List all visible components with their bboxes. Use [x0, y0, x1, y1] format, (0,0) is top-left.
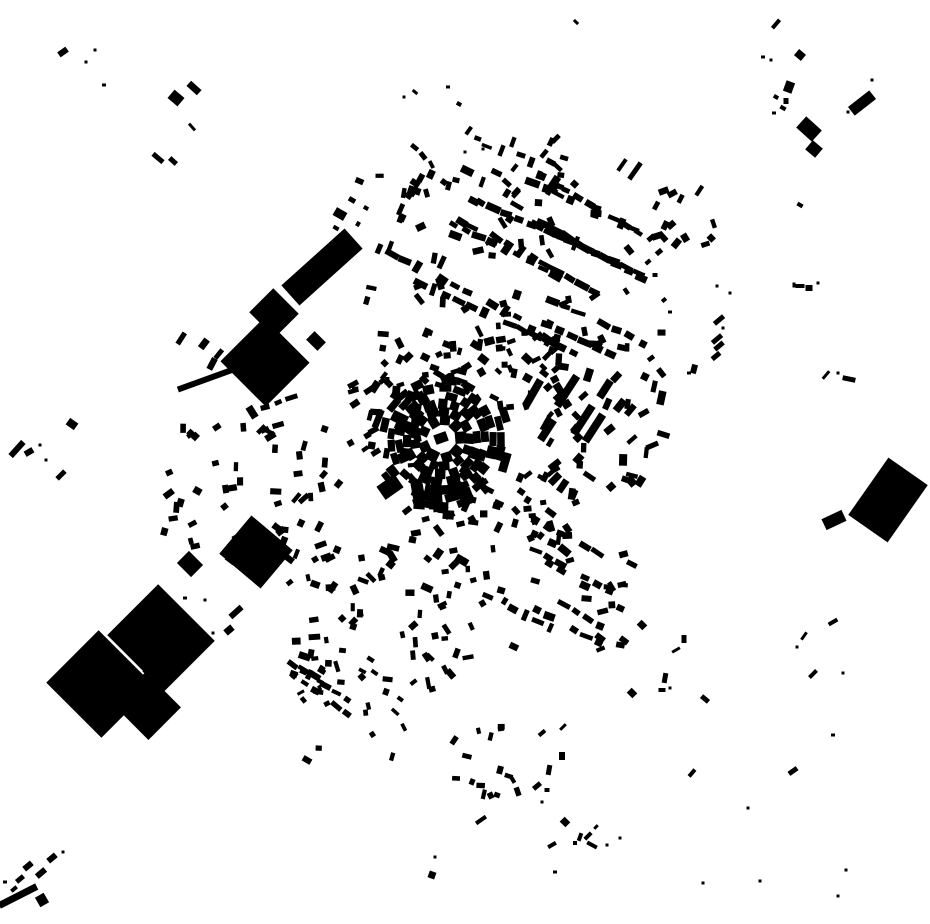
building-footprint	[479, 306, 490, 319]
building-footprint	[396, 203, 405, 216]
building-footprint	[604, 349, 617, 360]
building-footprint	[655, 248, 664, 256]
building-footprint	[462, 753, 472, 760]
building-footprint	[270, 488, 281, 495]
building-footprint	[160, 527, 168, 536]
building-footprint	[626, 434, 637, 445]
building-footprint	[475, 815, 487, 825]
building-footprint	[671, 237, 683, 249]
building-footprint	[188, 123, 196, 132]
building-footprint	[272, 421, 285, 429]
building-footprint	[457, 347, 463, 355]
building-footprint	[638, 408, 650, 418]
building-footprint	[187, 520, 197, 528]
building-footprint	[22, 860, 34, 871]
building-footprint	[592, 579, 603, 589]
building-footprint	[324, 637, 329, 644]
building-footprint	[500, 240, 514, 256]
building-footprint	[579, 580, 591, 591]
building-footprint	[571, 607, 581, 616]
building-footprint	[538, 729, 547, 737]
building-footprint	[571, 308, 587, 317]
building-footprint	[403, 435, 411, 447]
building-footprint	[488, 732, 494, 741]
building-footprint	[413, 403, 422, 410]
building-footprint	[400, 448, 410, 456]
building-footprint	[493, 792, 500, 799]
building-footprint	[547, 841, 557, 849]
building-footprint	[473, 431, 482, 444]
building-footprint	[710, 219, 717, 229]
building-footprint	[452, 776, 460, 781]
building-footprint	[24, 447, 35, 457]
building-footprint	[163, 488, 175, 500]
building-footprint	[223, 624, 234, 635]
building-footprint	[546, 437, 555, 447]
building-footprint	[845, 869, 848, 872]
building-footprint	[491, 168, 503, 178]
building-footprint	[300, 679, 309, 687]
building-footprint	[590, 210, 601, 218]
building-footprint	[293, 470, 303, 477]
building-footprint	[175, 331, 187, 345]
building-footprint	[842, 375, 856, 383]
building-footprint	[474, 135, 482, 142]
building-footprint	[560, 155, 569, 162]
building-footprint	[643, 447, 649, 458]
building-footprint	[220, 502, 229, 511]
building-footprint	[369, 731, 376, 738]
building-footprint	[539, 149, 548, 159]
building-footprint	[212, 632, 215, 635]
building-footprint	[476, 367, 486, 377]
building-footprint	[618, 550, 628, 558]
building-footprint	[770, 59, 773, 62]
building-footprint	[433, 524, 445, 537]
building-footprint	[287, 659, 299, 670]
building-footprint	[522, 373, 533, 384]
building-footprint	[462, 287, 473, 296]
building-footprint	[610, 371, 622, 384]
building-footprint	[496, 336, 507, 344]
building-footprint	[408, 536, 416, 544]
building-footprint	[493, 521, 503, 533]
building-footprint	[318, 482, 326, 493]
building-footprint	[514, 787, 522, 797]
building-footprint	[650, 380, 658, 392]
building-footprint	[325, 660, 332, 667]
building-footprint	[441, 569, 449, 575]
building-footprint	[506, 338, 516, 345]
building-footprint	[488, 252, 496, 259]
building-footprint	[532, 781, 542, 791]
building-footprint	[569, 349, 579, 358]
building-footprint	[449, 281, 460, 290]
building-footprint	[510, 163, 518, 172]
building-footprint	[496, 345, 505, 350]
building-footprint	[530, 577, 540, 585]
building-footprint	[366, 285, 377, 291]
building-footprint	[301, 440, 308, 451]
building-footprint	[380, 359, 389, 368]
building-footprint	[443, 352, 451, 359]
building-footprint	[333, 661, 340, 673]
building-footprint	[477, 353, 490, 365]
building-footprint	[293, 549, 300, 560]
building-footprint	[382, 676, 392, 682]
building-footprint	[597, 607, 609, 615]
building-footprint	[274, 399, 282, 406]
building-footprint	[456, 101, 462, 107]
building-footprint	[405, 589, 414, 596]
building-footprint	[772, 112, 776, 115]
building-footprint	[508, 642, 519, 652]
building-footprint	[510, 200, 524, 211]
building-footprint	[367, 441, 376, 450]
building-footprint	[378, 331, 389, 337]
building-footprint	[413, 637, 419, 648]
building-footprint	[627, 161, 643, 180]
building-footprint	[656, 390, 666, 405]
building-footprint	[349, 398, 360, 409]
building-footprint	[319, 470, 328, 479]
building-footprint	[483, 336, 495, 346]
building-footprint	[66, 418, 79, 430]
building-footprint	[566, 331, 579, 341]
building-footprint	[274, 500, 283, 507]
building-footprint	[593, 824, 599, 830]
building-footprint	[435, 351, 443, 359]
building-footprint	[528, 390, 535, 394]
building-footprint	[367, 410, 374, 421]
building-footprint	[35, 867, 47, 879]
building-footprint	[623, 287, 630, 295]
building-footprint	[596, 378, 614, 399]
building-footprint	[431, 632, 439, 640]
building-footprint	[314, 540, 327, 549]
building-footprint	[326, 584, 336, 591]
building-footprint	[382, 688, 390, 696]
building-footprint	[471, 231, 487, 242]
building-footprint	[498, 724, 505, 730]
building-footprint	[518, 239, 524, 248]
building-footprint	[480, 510, 487, 517]
building-footprint	[656, 367, 667, 378]
building-footprint	[204, 599, 207, 602]
building-footprint	[389, 752, 395, 761]
building-footprint	[496, 322, 501, 329]
building-footprint	[472, 246, 484, 255]
building-footprint	[206, 357, 217, 371]
building-footprint	[475, 325, 484, 337]
building-footprint	[449, 547, 458, 554]
building-footprint	[603, 423, 616, 435]
building-footprint	[46, 852, 58, 863]
building-footprint	[337, 679, 345, 685]
building-footprint	[434, 856, 437, 859]
building-footprint	[355, 177, 365, 185]
building-footprint	[464, 151, 467, 154]
building-footprint	[490, 545, 495, 553]
building-footprint	[478, 176, 485, 187]
building-footprint	[523, 505, 532, 512]
building-footprint	[502, 178, 513, 188]
building-footprint	[606, 481, 617, 492]
building-footprint	[817, 282, 820, 285]
building-footprint	[759, 880, 762, 883]
building-footprint	[669, 687, 672, 690]
building-footprint	[308, 634, 320, 641]
building-footprint	[391, 708, 400, 717]
building-footprint	[338, 614, 347, 623]
building-footprint	[297, 689, 305, 695]
building-footprint	[286, 579, 294, 587]
building-footprint	[402, 505, 413, 515]
building-footprint	[411, 529, 422, 537]
building-footprint	[186, 81, 201, 96]
building-footprint	[366, 655, 375, 663]
building-footprint	[507, 603, 519, 614]
building-footprint	[559, 752, 565, 760]
building-footprint	[516, 151, 526, 158]
building-footprint	[671, 646, 680, 653]
building-footprint	[440, 296, 446, 307]
building-footprint	[375, 243, 384, 254]
building-footprint	[546, 248, 555, 259]
building-footprint	[456, 520, 465, 527]
building-footprint	[701, 241, 711, 248]
building-footprint	[462, 654, 474, 660]
building-footprint	[429, 364, 439, 373]
building-footprint	[523, 496, 532, 505]
building-footprint	[690, 364, 698, 374]
building-footprint	[167, 90, 184, 107]
building-footprint	[234, 462, 239, 471]
building-footprint	[413, 503, 425, 510]
figure-ground-map	[0, 0, 930, 924]
building-footprint	[527, 156, 536, 168]
building-footprint	[8, 440, 25, 458]
building-footprint	[578, 541, 592, 553]
building-footprint	[563, 273, 575, 284]
building-footprint	[647, 354, 655, 362]
building-footprint	[403, 96, 406, 99]
building-footprint	[397, 696, 404, 703]
building-footprint	[192, 486, 202, 496]
building-footprint	[545, 507, 557, 518]
building-footprint	[400, 631, 406, 638]
building-footprint	[310, 580, 321, 589]
building-footprint	[543, 382, 553, 392]
building-footprint	[375, 174, 383, 178]
building-footprint	[94, 49, 97, 52]
building-footprint	[411, 416, 417, 427]
building-footprint	[55, 469, 66, 480]
building-footprint	[511, 518, 519, 528]
building-footprint	[448, 230, 463, 242]
building-footprint	[619, 583, 628, 588]
building-footprint	[577, 833, 583, 842]
building-footprint	[482, 148, 485, 151]
building-footprint	[437, 505, 448, 514]
building-footprint	[305, 574, 311, 582]
building-footprint	[272, 444, 278, 453]
building-footprint	[521, 352, 534, 365]
building-footprint	[722, 327, 725, 330]
building-footprint	[595, 621, 605, 631]
building-footprint	[3, 881, 7, 884]
building-footprint	[611, 325, 622, 334]
building-footprint	[848, 90, 876, 115]
building-footprint	[502, 319, 517, 329]
building-footprint	[365, 702, 371, 710]
building-footprint	[576, 461, 583, 469]
building-footprint	[426, 169, 436, 180]
building-footprint	[333, 545, 342, 554]
building-footprint	[334, 479, 344, 489]
building-footprint	[583, 471, 597, 483]
building-footprint	[398, 255, 412, 266]
building-footprint	[582, 613, 594, 624]
building-footprint	[489, 393, 499, 401]
building-footprint	[496, 765, 504, 774]
building-footprint	[402, 351, 414, 363]
building-footprint	[408, 463, 415, 468]
building-footprint	[423, 188, 430, 197]
building-footprint	[411, 260, 423, 274]
building-footprint	[415, 222, 427, 232]
building-footprint	[626, 559, 638, 569]
building-footprint	[502, 188, 511, 198]
building-footprint	[314, 521, 324, 533]
building-footprint	[501, 597, 509, 606]
building-footprint	[532, 605, 542, 615]
building-footprint	[828, 618, 839, 626]
building-footprint	[183, 597, 187, 600]
building-footprint	[509, 137, 517, 148]
building-footprint	[682, 635, 687, 643]
building-footprint	[581, 326, 588, 336]
building-footprint	[761, 56, 765, 59]
building-footprint	[539, 363, 547, 371]
building-footprint	[569, 625, 579, 635]
building-footprint	[260, 404, 270, 411]
building-footprint	[476, 727, 481, 734]
building-footprint	[514, 215, 525, 224]
building-footprint	[442, 623, 452, 635]
building-footprint	[653, 273, 658, 277]
building-footprint	[358, 554, 365, 561]
building-footprint	[729, 292, 732, 295]
building-footprint	[506, 348, 513, 357]
building-footprint	[449, 401, 460, 412]
building-footprint	[822, 370, 831, 380]
building-footprint	[387, 428, 395, 439]
building-footprint	[168, 515, 178, 522]
building-footprint	[517, 487, 526, 496]
building-footprint	[357, 577, 369, 585]
building-footprint	[323, 700, 331, 707]
building-footprint	[168, 156, 178, 166]
building-footprint	[497, 586, 506, 594]
building-footprint	[606, 844, 609, 847]
building-footprint	[62, 851, 65, 854]
building-footprint	[383, 448, 391, 459]
building-footprint	[212, 460, 220, 467]
building-footprint	[800, 631, 808, 640]
building-footprint	[531, 617, 544, 626]
building-footprint	[574, 278, 591, 291]
building-footprint	[606, 256, 620, 267]
building-footprint	[343, 696, 351, 704]
building-footprint	[848, 458, 927, 543]
building-footprint	[57, 47, 69, 58]
building-footprint	[796, 284, 805, 288]
building-footprint	[540, 500, 547, 506]
building-footprint	[619, 837, 622, 840]
building-footprint	[85, 61, 88, 64]
building-footprint	[306, 331, 326, 351]
building-footprint	[623, 244, 634, 256]
building-footprint	[546, 623, 554, 633]
building-footprint	[553, 871, 557, 874]
building-footprint	[437, 255, 447, 269]
building-footprint	[512, 289, 522, 300]
building-footprint	[560, 817, 571, 828]
building-footprint	[394, 337, 404, 349]
building-footprint	[320, 425, 328, 433]
building-footprint	[476, 339, 483, 351]
building-footprint	[297, 518, 306, 527]
building-footprint	[483, 571, 490, 580]
building-footprint	[661, 220, 670, 231]
building-footprint	[657, 430, 671, 439]
building-footprint	[489, 432, 496, 446]
building-footprint	[460, 165, 475, 177]
building-footprint	[546, 765, 553, 776]
building-footprint	[438, 398, 448, 409]
building-footprint	[459, 419, 472, 433]
building-footprint	[501, 312, 511, 317]
building-footprint	[502, 362, 508, 368]
building-footprint	[412, 89, 419, 95]
building-footprint	[418, 151, 427, 161]
building-footprint	[579, 632, 593, 641]
building-footprint	[677, 194, 685, 204]
building-footprint	[39, 444, 42, 447]
building-footprint	[694, 185, 704, 197]
building-footprint	[608, 601, 615, 608]
building-footprint	[478, 599, 486, 607]
building-footprint	[487, 791, 495, 799]
building-footprint	[506, 404, 514, 410]
building-footprint	[355, 221, 361, 227]
building-footprint	[292, 638, 301, 645]
building-footprint	[512, 313, 522, 321]
building-footprint	[787, 766, 798, 776]
building-footprint	[596, 318, 611, 330]
building-footprint	[783, 80, 795, 93]
building-footprint	[702, 882, 705, 885]
building-footprint	[470, 577, 477, 583]
building-footprint	[521, 330, 527, 336]
building-footprint	[662, 673, 669, 684]
building-footprint	[573, 19, 579, 25]
building-footprint	[237, 477, 243, 485]
building-footprint	[623, 330, 635, 341]
building-footprint	[779, 105, 786, 111]
building-footprint	[468, 196, 481, 207]
